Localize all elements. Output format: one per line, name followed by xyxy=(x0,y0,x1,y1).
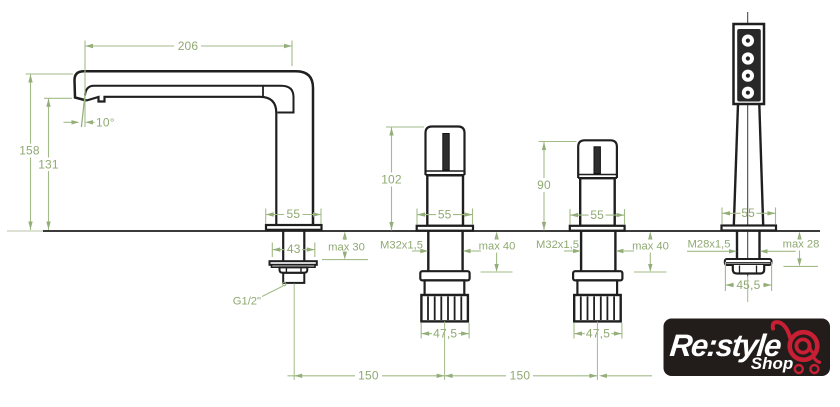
svg-text:90: 90 xyxy=(537,178,551,192)
svg-text:150: 150 xyxy=(358,369,379,383)
svg-text:G1/2": G1/2" xyxy=(233,296,261,308)
svg-text:max 30: max 30 xyxy=(328,242,365,254)
svg-text:45,5: 45,5 xyxy=(736,278,760,292)
svg-text:55: 55 xyxy=(287,207,301,221)
svg-text:206: 206 xyxy=(178,39,199,53)
svg-text:43: 43 xyxy=(287,242,301,256)
svg-text:max 40: max 40 xyxy=(479,241,516,253)
svg-text:47,5: 47,5 xyxy=(433,326,457,340)
svg-text:131: 131 xyxy=(38,158,59,172)
svg-text:150: 150 xyxy=(510,369,531,383)
svg-text:55: 55 xyxy=(590,208,604,222)
svg-text:55: 55 xyxy=(741,206,755,220)
svg-text:M32x1,5: M32x1,5 xyxy=(380,239,423,251)
svg-text:47,5: 47,5 xyxy=(586,326,610,340)
svg-text:Shop: Shop xyxy=(751,354,794,373)
svg-text:max 40: max 40 xyxy=(632,241,669,253)
svg-text:158: 158 xyxy=(19,144,40,158)
svg-text:10°: 10° xyxy=(96,116,115,130)
svg-text:102: 102 xyxy=(381,172,402,186)
svg-text:max 28: max 28 xyxy=(783,239,820,251)
svg-text:55: 55 xyxy=(438,207,452,221)
svg-text:M28x1,5: M28x1,5 xyxy=(688,239,731,251)
svg-text:M32x1,5: M32x1,5 xyxy=(536,239,579,251)
